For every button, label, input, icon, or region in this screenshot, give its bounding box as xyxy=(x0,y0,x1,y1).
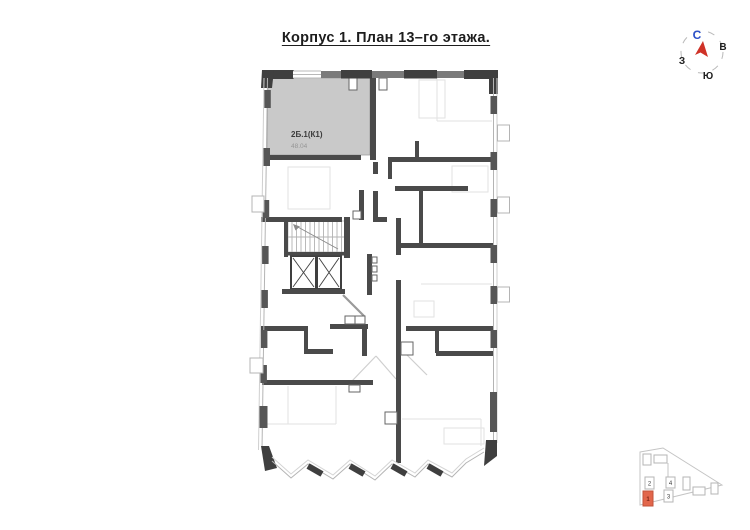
compass-east-label: В xyxy=(719,42,726,53)
north-arrow-icon xyxy=(695,41,708,57)
staircase xyxy=(288,221,346,252)
elevator-shafts xyxy=(291,256,341,289)
minimap-building-2[interactable]: 2 xyxy=(645,477,654,489)
compass-south-label: Ю xyxy=(703,71,713,82)
minimap-building-1-highlighted[interactable]: 1 xyxy=(643,491,653,506)
page: Корпус 1. План 13–го этажа. 2Б.1(К1) 48.… xyxy=(0,0,750,530)
balcony-sawtooth xyxy=(272,448,484,480)
minimap-building-3[interactable]: 3 xyxy=(664,490,673,502)
site-minimap: 2 4 3 1 xyxy=(640,448,722,506)
minimap-building-4[interactable]: 4 xyxy=(666,477,675,488)
top-window xyxy=(293,71,321,79)
corridor-angled-wall xyxy=(343,295,364,316)
floorplan-canvas: 2Б.1(К1) 48.04 xyxy=(0,0,750,530)
door-swing-lines xyxy=(352,352,427,381)
right-facade xyxy=(484,78,510,466)
apartment-area-label: 48.04 xyxy=(291,143,308,150)
apartment-id-label: 2Б.1(К1) xyxy=(291,130,323,139)
compass-west-label: З xyxy=(679,56,685,67)
compass-north-label: С xyxy=(693,28,702,42)
compass-rose: С В З Ю xyxy=(679,28,727,82)
